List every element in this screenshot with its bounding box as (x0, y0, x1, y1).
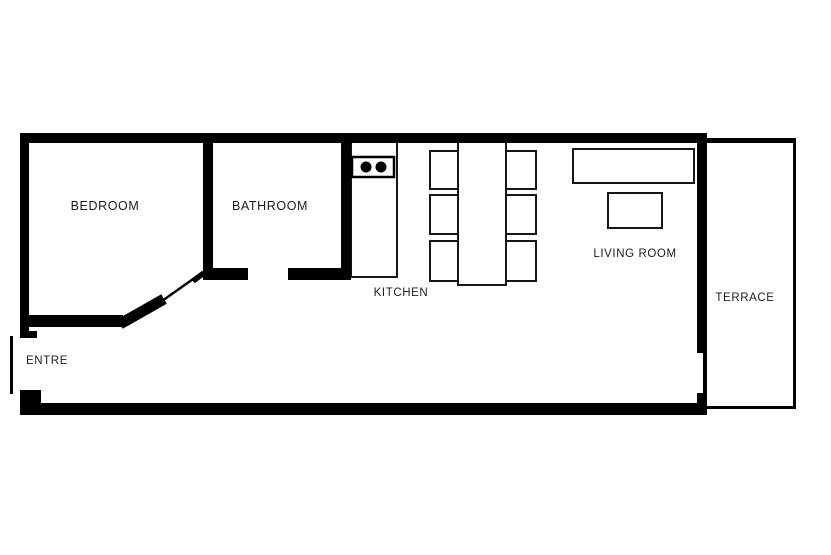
bedroom-bathroom-wall (203, 143, 213, 280)
dining-chair-icon (506, 151, 536, 189)
coffee-table-icon (608, 193, 662, 228)
terrace-divider-wall (697, 133, 707, 353)
terrace-divider-stub (697, 393, 707, 405)
terrace-door-opening-line (703, 353, 707, 398)
bedroom-bottom-wall (20, 315, 123, 327)
floorplan-image: BEDROOM BATHROOM KITCHEN LIVING ROOM TER… (0, 0, 831, 555)
outer-top-wall (20, 133, 707, 143)
terrace-top-wall (707, 138, 794, 143)
outer-bottom-wall (20, 403, 707, 415)
stove-burner-left-icon (361, 162, 372, 173)
bathroom-bottom-wall-left (203, 268, 248, 280)
room-label-kitchen: KITCHEN (374, 287, 429, 299)
room-label-bathroom: BATHROOM (232, 199, 308, 213)
dining-chair-icon (506, 241, 536, 281)
dining-chair-icon (430, 241, 458, 281)
dining-table-icon (458, 137, 506, 285)
terrace-bottom-wall (707, 406, 794, 409)
dining-chair-icon (430, 195, 458, 234)
stove-burner-right-icon (376, 162, 387, 173)
bedroom-diagonal-wall (120, 299, 164, 324)
room-label-entre: ENTRE (26, 355, 68, 367)
room-label-terrace: TERRACE (715, 292, 774, 304)
stove-icon (352, 157, 394, 177)
outer-left-wall-upper (20, 133, 29, 331)
furniture-layer (351, 137, 694, 285)
sofa-icon (573, 149, 694, 183)
room-label-bedroom: BEDROOM (71, 199, 140, 213)
terrace-right-wall (793, 138, 796, 409)
bathroom-kitchen-wall (341, 143, 351, 278)
entry-door-opening-line (10, 336, 13, 394)
entry-door-jamb-top (20, 331, 37, 338)
room-label-living-room: LIVING ROOM (593, 248, 676, 260)
entry-door-jamb-bottom (20, 390, 41, 403)
dining-chair-icon (430, 151, 458, 189)
bedroom-door-jamb-tick (193, 273, 204, 281)
floorplan-svg: BEDROOM BATHROOM KITCHEN LIVING ROOM TER… (0, 0, 831, 555)
dining-chair-icon (506, 195, 536, 234)
